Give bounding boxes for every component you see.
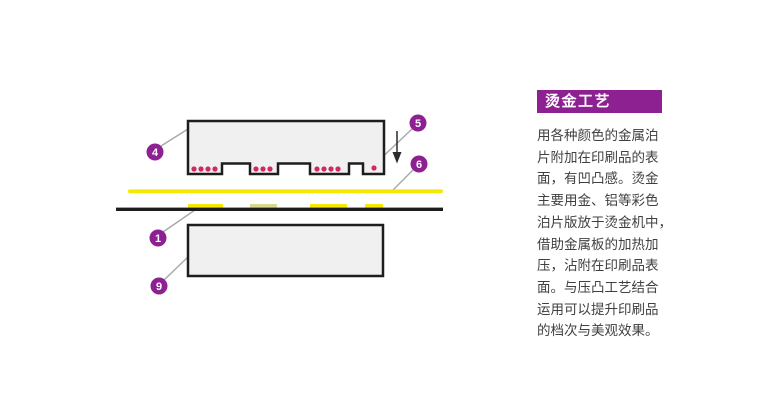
heat-dot xyxy=(335,166,340,171)
heat-dot xyxy=(260,166,265,171)
callout-leader-4 xyxy=(161,129,188,146)
foil-patch xyxy=(365,204,383,208)
foil-patch xyxy=(188,204,223,208)
description-line: 片附加在印刷品的表 xyxy=(537,147,697,169)
heat-dot xyxy=(253,166,258,171)
description-panel: 烫金工艺 用各种颜色的金属泊片附加在印刷品的表面，有凹凸感。烫金主要用金、铝等彩… xyxy=(537,90,697,342)
heat-dot xyxy=(314,166,319,171)
callout-number-6: 6 xyxy=(416,159,422,171)
foil-ribbon xyxy=(128,189,443,193)
heat-dot xyxy=(212,166,217,171)
description-line: 用各种颜色的金属泊 xyxy=(537,125,697,147)
heat-dot xyxy=(321,166,326,171)
heat-dot xyxy=(328,166,333,171)
description-line: 借助金属板的加热加 xyxy=(537,234,697,256)
callout-leader-9 xyxy=(164,257,188,280)
description-line: 运用可以提升印刷品 xyxy=(537,299,697,321)
callout-number-5: 5 xyxy=(415,118,421,130)
lower-platen xyxy=(188,225,383,276)
foil-patch xyxy=(310,204,347,208)
panel-title-box: 烫金工艺 xyxy=(537,90,662,113)
press-arrow-head-icon xyxy=(393,152,402,164)
heat-dot xyxy=(191,166,196,171)
callout-number-9: 9 xyxy=(156,281,162,293)
callout-number-1: 1 xyxy=(155,233,161,245)
foil-patch-pale xyxy=(250,204,277,208)
description-line: 主要用金、铝等彩色 xyxy=(537,190,697,212)
substrate-sheet xyxy=(116,208,443,211)
description-line: 的档次与美观效果。 xyxy=(537,320,697,342)
description-line: 面，有凹凸感。烫金 xyxy=(537,168,697,190)
heat-dot xyxy=(198,166,203,171)
description-line: 面。与压凸工艺结合 xyxy=(537,277,697,299)
heat-dot xyxy=(205,166,210,171)
description-line: 压，沾附在印刷品表 xyxy=(537,255,697,277)
heat-dot xyxy=(371,165,376,170)
callout-leader-6 xyxy=(393,170,413,190)
panel-title: 烫金工艺 xyxy=(545,94,611,109)
heat-dot xyxy=(267,166,272,171)
description-line: 泊片版放于烫金机中， xyxy=(537,212,697,234)
panel-description: 用各种颜色的金属泊片附加在印刷品的表面，有凹凸感。烫金主要用金、铝等彩色泊片版放… xyxy=(537,125,697,342)
upper-stamping-die xyxy=(188,121,384,174)
hot-stamping-infographic: 45619 烫金工艺 用各种颜色的金属泊片附加在印刷品的表面，有凹凸感。烫金主要… xyxy=(0,0,770,420)
callout-number-4: 4 xyxy=(152,147,159,159)
